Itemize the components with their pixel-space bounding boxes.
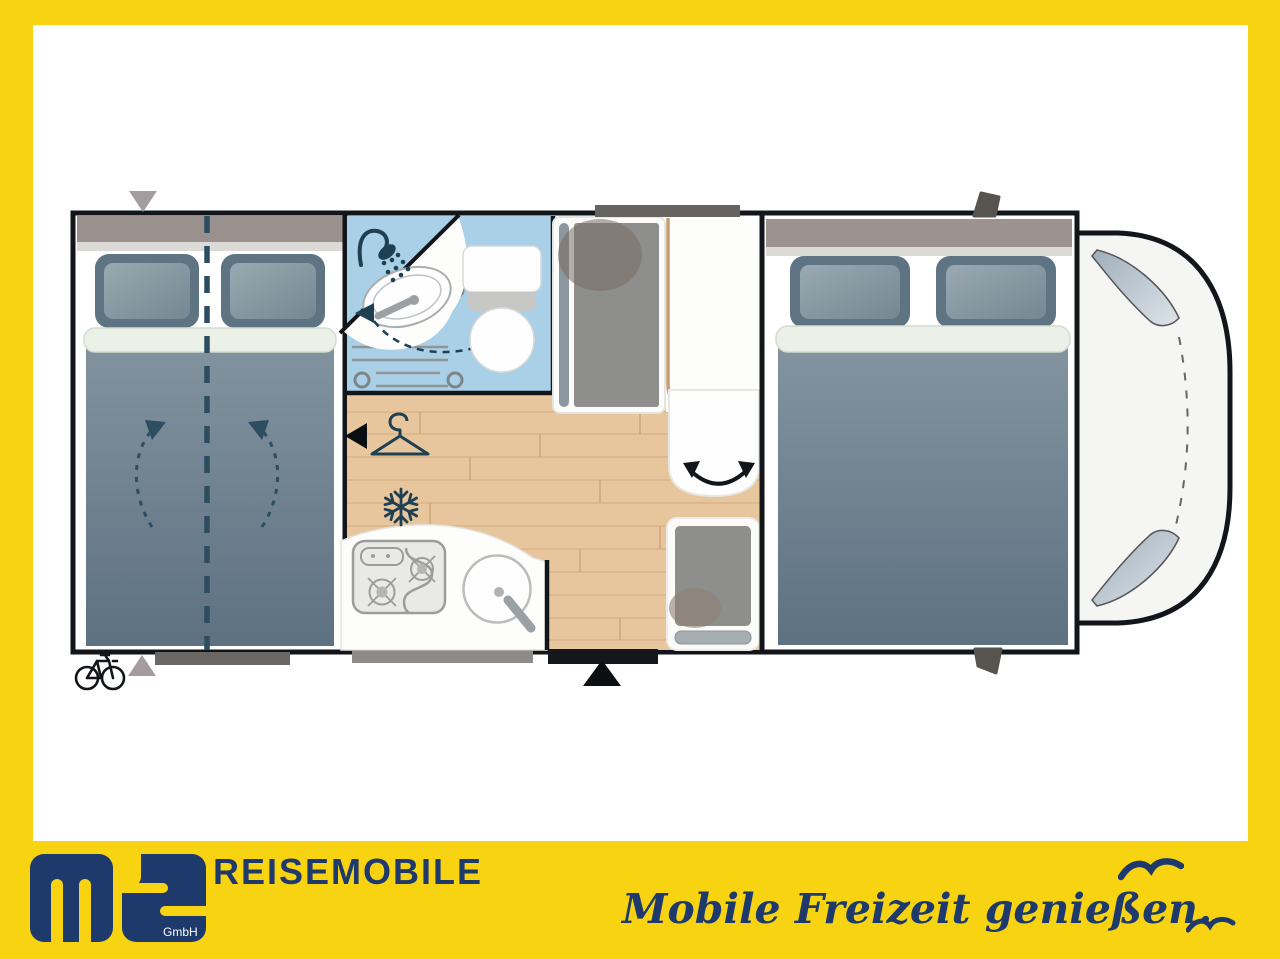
rear-marker-icon xyxy=(129,191,157,212)
sheet-fold xyxy=(84,328,336,352)
duvet xyxy=(86,338,334,646)
fridge-cabinet xyxy=(553,217,665,413)
swivel-seat xyxy=(669,390,759,496)
dinette-bench xyxy=(666,218,760,413)
service-flap-marker xyxy=(352,651,533,663)
side-mirror-bottom xyxy=(975,649,1001,673)
slogan-text: Mobile Freizeit genießen. xyxy=(622,885,1212,933)
floorplan-drawing xyxy=(0,0,1280,959)
toilet xyxy=(463,246,541,372)
hob xyxy=(353,541,445,613)
front-marker-icon xyxy=(128,655,156,676)
driver-cab xyxy=(1062,233,1230,623)
rear-travel-seat xyxy=(667,518,759,650)
footer-band: GmbH REISEMOBILE Mobile Freizeit genieße… xyxy=(0,841,1280,959)
sheet-fold xyxy=(776,326,1070,352)
bathroom xyxy=(340,215,553,394)
page: GmbH REISEMOBILE Mobile Freizeit genieße… xyxy=(0,0,1280,959)
roof-vent-marker xyxy=(595,205,740,217)
ms-logo: GmbH xyxy=(30,854,206,942)
bicycle-icon xyxy=(76,655,124,689)
side-mirror-top xyxy=(974,193,999,216)
company-name: REISEMOBILE xyxy=(213,851,483,893)
seagull-icon xyxy=(1186,913,1236,938)
seagull-icon xyxy=(1118,853,1184,887)
logo-sub-label: GmbH xyxy=(163,925,198,939)
duvet xyxy=(778,346,1068,645)
garage-door-marker xyxy=(155,652,290,665)
